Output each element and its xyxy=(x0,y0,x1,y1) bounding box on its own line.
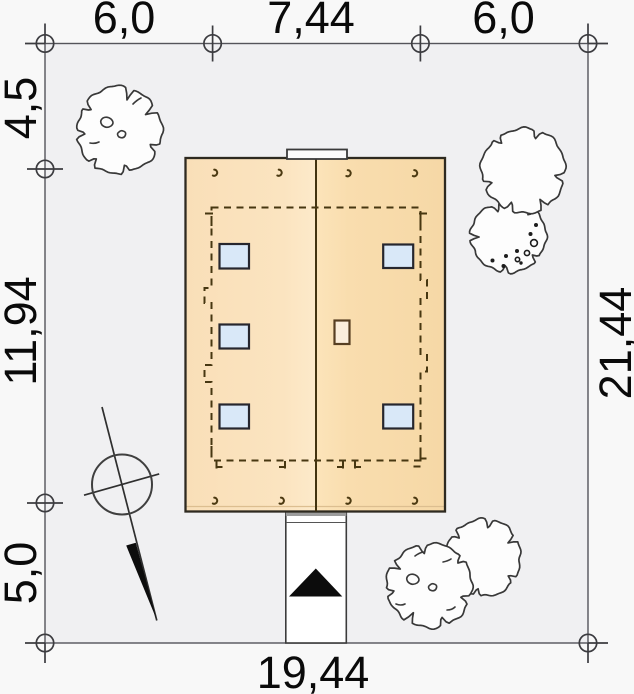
svg-text:7,44: 7,44 xyxy=(267,0,355,43)
svg-text:11,94: 11,94 xyxy=(0,276,46,385)
svg-text:21,44: 21,44 xyxy=(590,287,634,400)
svg-text:6,0: 6,0 xyxy=(93,0,156,43)
svg-text:19,44: 19,44 xyxy=(257,647,370,694)
svg-text:5,0: 5,0 xyxy=(0,542,46,605)
svg-text:4,5: 4,5 xyxy=(0,77,46,140)
svg-text:6,0: 6,0 xyxy=(472,0,535,43)
